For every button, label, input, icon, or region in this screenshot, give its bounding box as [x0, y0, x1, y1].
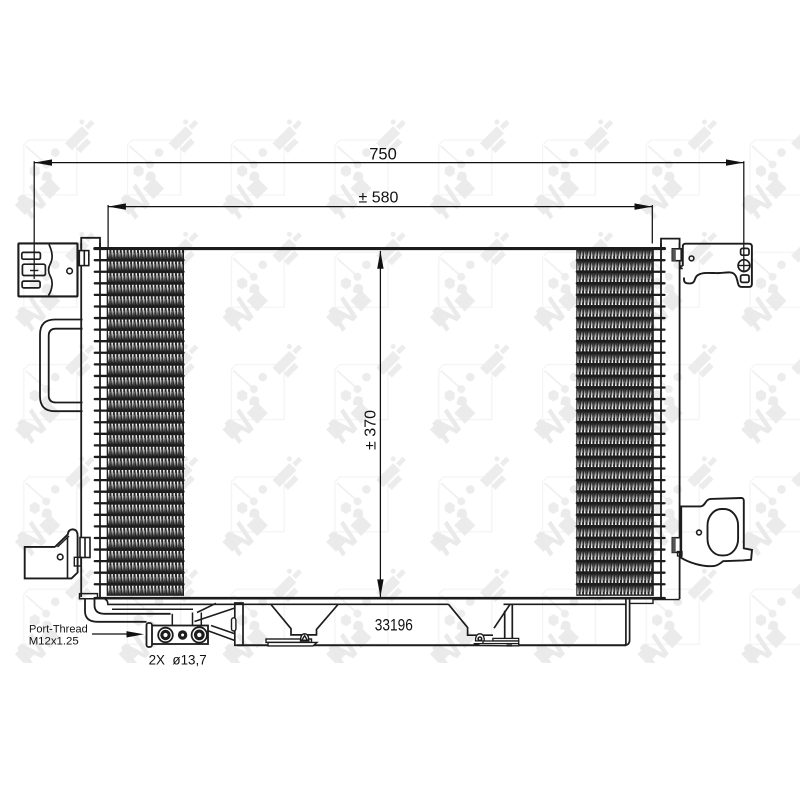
svg-text:± 580: ± 580: [359, 190, 399, 207]
svg-text:750: 750: [369, 145, 397, 163]
svg-text:33196: 33196: [375, 615, 413, 634]
svg-text:Port-Thread: Port-Thread: [29, 623, 88, 635]
svg-text:2X ø13,7: 2X ø13,7: [149, 653, 207, 668]
svg-text:± 370: ± 370: [363, 410, 380, 450]
svg-text:M12x1.25: M12x1.25: [29, 635, 79, 647]
